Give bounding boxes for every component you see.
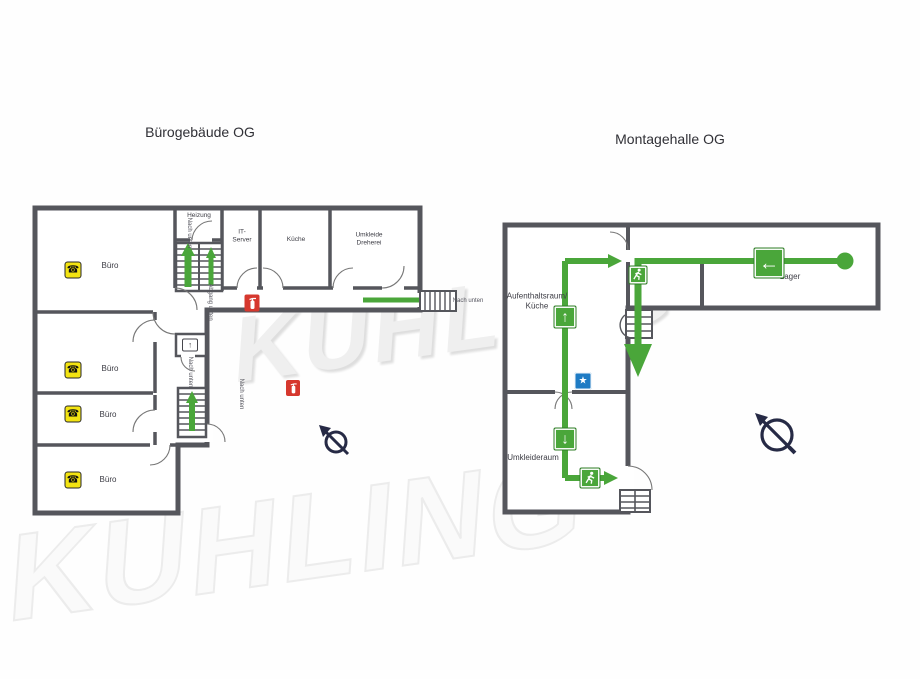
left-outer-wall bbox=[35, 208, 420, 513]
arrow-down-glyph: ↓ bbox=[561, 432, 569, 447]
arrow-left-glyph: ← bbox=[759, 253, 779, 273]
exit-sign-arrow-left: ← bbox=[754, 248, 785, 279]
right-north-compass bbox=[755, 413, 795, 453]
phone-glyph: ☎ bbox=[67, 409, 79, 419]
blue-star-sign: ★ bbox=[575, 373, 592, 390]
room-label-kueche: Küche bbox=[287, 236, 305, 244]
right-plan-title: Montagehalle OG bbox=[615, 131, 725, 147]
left-east-external-stairs bbox=[420, 291, 456, 311]
room-label-buero1: Büro bbox=[102, 261, 119, 271]
note-stair-top: Nach unten bbox=[186, 218, 192, 249]
room-label-it-server: IT- Server bbox=[232, 229, 251, 246]
wc-arrow-icon: ↑ bbox=[182, 339, 198, 352]
note-mid-stair: Nach unten bbox=[187, 357, 193, 388]
room-label-buero3: Büro bbox=[100, 410, 117, 420]
buero2-door-opening bbox=[152, 320, 158, 342]
emergency-phone-icon: ☎ bbox=[65, 472, 82, 489]
left-plan-title: Bürogebäude OG bbox=[145, 124, 255, 140]
fire-extinguisher-icon bbox=[245, 295, 260, 312]
emergency-exit-running-man-sign bbox=[629, 266, 648, 285]
exit-sign-arrow-up: ↑ bbox=[554, 306, 577, 329]
fire-extinguisher-icon bbox=[286, 380, 300, 396]
emergency-phone-icon: ☎ bbox=[65, 362, 82, 379]
note-abgang-unten: Abgang unten bbox=[207, 283, 213, 320]
room-label-umkleide-dreherei: Umkleide Dreherei bbox=[355, 232, 382, 249]
wc-arrow-glyph: ↑ bbox=[188, 341, 192, 349]
extinguisher-glyph bbox=[289, 382, 298, 394]
note-east-exit: Nach unten bbox=[453, 298, 484, 304]
right-outer-wall bbox=[505, 225, 878, 512]
phone-glyph: ☎ bbox=[67, 265, 79, 275]
umkleideraum-exit-stairs bbox=[620, 490, 650, 512]
star-glyph: ★ bbox=[579, 376, 588, 386]
extinguisher-glyph bbox=[247, 297, 257, 310]
note-wing-stair: Nach unten bbox=[238, 379, 244, 410]
room-label-buero2: Büro bbox=[102, 364, 119, 374]
floorplan-drawing bbox=[0, 0, 920, 679]
arrow-up-glyph: ↑ bbox=[561, 310, 569, 325]
emergency-exit-running-man-sign bbox=[580, 468, 601, 489]
running-man-icon bbox=[631, 268, 646, 283]
umkleideraum-exit-opening bbox=[622, 466, 634, 490]
left-main-stairs bbox=[176, 243, 222, 291]
room-label-umkleideraum: Umkleideraum bbox=[507, 453, 559, 463]
phone-glyph: ☎ bbox=[67, 365, 79, 375]
escape-plan-scan: KÜHLING KÜHLING bbox=[0, 0, 920, 679]
room-label-buero4: Büro bbox=[100, 475, 117, 485]
emergency-phone-icon: ☎ bbox=[65, 262, 82, 279]
exit-sign-arrow-down: ↓ bbox=[554, 428, 577, 451]
left-building bbox=[35, 206, 456, 513]
buero3-door-opening bbox=[152, 410, 158, 432]
right-building bbox=[505, 223, 878, 512]
phone-glyph: ☎ bbox=[67, 475, 79, 485]
emergency-phone-icon: ☎ bbox=[65, 406, 82, 423]
left-north-compass bbox=[319, 425, 348, 454]
running-man-icon bbox=[582, 470, 598, 486]
